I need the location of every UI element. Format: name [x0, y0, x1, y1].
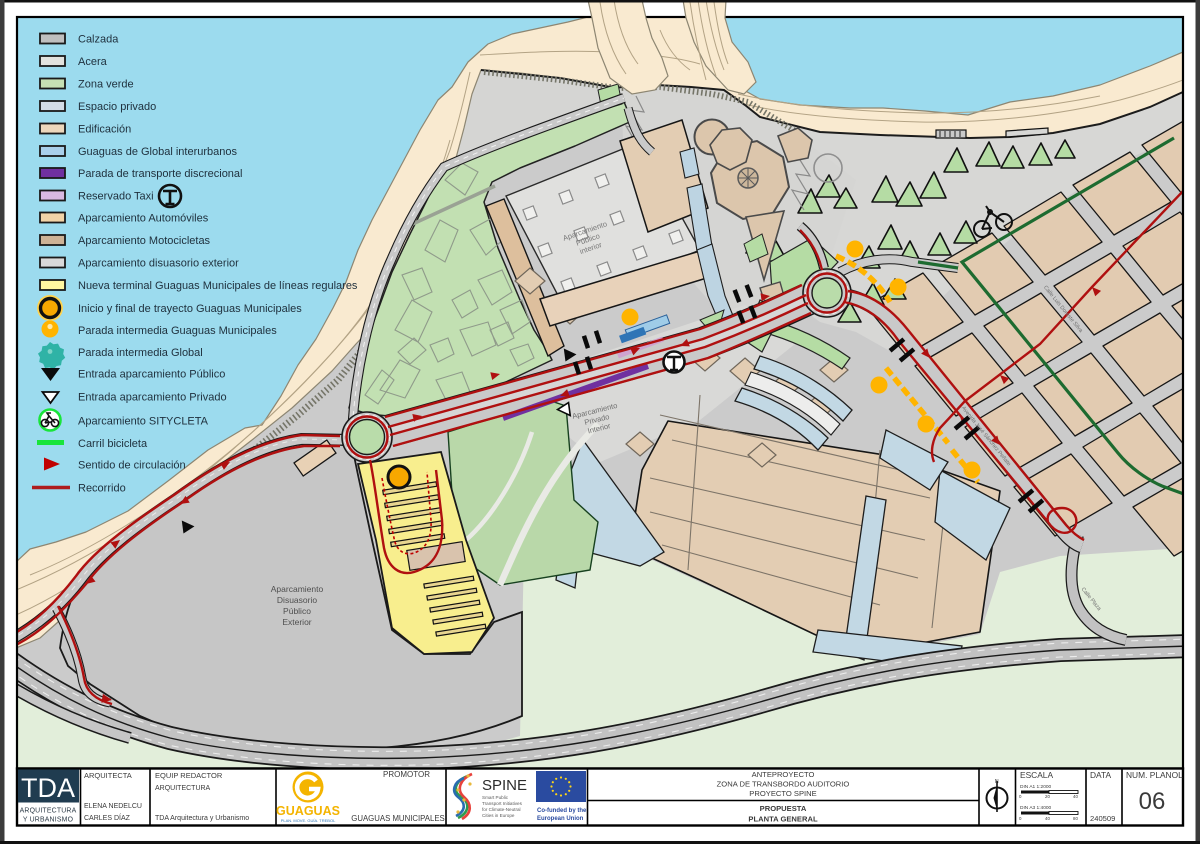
svg-text:Reservado Taxi: Reservado Taxi: [78, 191, 154, 203]
svg-text:ARQUITECTURA: ARQUITECTURA: [20, 808, 77, 815]
svg-text:Público: Público: [283, 606, 311, 616]
svg-text:Calzada: Calzada: [78, 34, 119, 46]
svg-text:Carril bicicleta: Carril bicicleta: [78, 438, 148, 450]
svg-text:European Union: European Union: [537, 816, 584, 822]
svg-text:PROYECTO SPINE: PROYECTO SPINE: [749, 789, 816, 798]
svg-text:Y URBANISMO: Y URBANISMO: [23, 817, 74, 824]
svg-text:Parada intermedia Global: Parada intermedia Global: [78, 347, 203, 359]
svg-text:ZONA DE TRANSBORDO AUDITORIO: ZONA DE TRANSBORDO AUDITORIO: [717, 780, 850, 789]
svg-text:Espacio privado: Espacio privado: [78, 101, 156, 113]
svg-text:PLANTA GENERAL: PLANTA GENERAL: [748, 815, 818, 824]
svg-text:GUAGUAS: GUAGUAS: [276, 804, 340, 818]
svg-text:TDA Arquitectura y Urbanismo: TDA Arquitectura y Urbanismo: [155, 815, 249, 822]
svg-text:Cities in Europe: Cities in Europe: [482, 813, 515, 818]
svg-text:EQUIP REDACTOR: EQUIP REDACTOR: [155, 771, 223, 780]
svg-text:Parada de transporte discrecio: Parada de transporte discrecional: [78, 168, 242, 180]
svg-text:Sentido de circulación: Sentido de circulación: [78, 460, 186, 472]
svg-text:ANTEPROYECTO: ANTEPROYECTO: [752, 770, 815, 779]
svg-text:GUAGUAS MUNICIPALES: GUAGUAS MUNICIPALES: [351, 814, 444, 823]
svg-text:PROMOTOR: PROMOTOR: [383, 770, 430, 779]
svg-text:Co-funded by the: Co-funded by the: [537, 808, 587, 814]
svg-text:Aparcamiento disuasorio exteri: Aparcamiento disuasorio exterior: [78, 258, 239, 270]
svg-text:Entrada aparcamiento Público: Entrada aparcamiento Público: [78, 369, 225, 381]
svg-text:Acera: Acera: [78, 56, 108, 68]
svg-text:Aparcamiento Automóviles: Aparcamiento Automóviles: [78, 213, 209, 225]
svg-text:Guaguas de Global interurbanos: Guaguas de Global interurbanos: [78, 146, 237, 158]
svg-text:CARLES DÍAZ: CARLES DÍAZ: [84, 813, 131, 822]
svg-text:for Climate-Neutral: for Climate-Neutral: [482, 807, 521, 812]
svg-text:Inicio y final de trayecto Gua: Inicio y final de trayecto Guaguas Munic…: [78, 303, 302, 315]
svg-text:ARQUITECTURA: ARQUITECTURA: [155, 785, 211, 792]
svg-text:SPINE: SPINE: [482, 777, 527, 794]
svg-text:Entrada aparcamiento Privado: Entrada aparcamiento Privado: [78, 392, 227, 404]
svg-text:ARQUITECTA: ARQUITECTA: [84, 771, 132, 780]
svg-text:DIN A1 1:2000: DIN A1 1:2000: [1020, 784, 1052, 790]
svg-text:240509: 240509: [1090, 814, 1115, 823]
svg-text:N: N: [995, 779, 999, 785]
svg-text:Zona verde: Zona verde: [78, 79, 134, 91]
svg-text:TDA: TDA: [21, 773, 75, 803]
svg-text:Aparcamiento SITYCLETA: Aparcamiento SITYCLETA: [78, 416, 209, 428]
svg-text:Nueva terminal Guaguas Municip: Nueva terminal Guaguas Municipales de lí…: [78, 280, 358, 292]
svg-text:Aparcamiento: Aparcamiento: [271, 584, 324, 594]
svg-text:40: 40: [1045, 816, 1050, 821]
svg-text:Recorrido: Recorrido: [78, 483, 126, 495]
svg-text:Parada intermedia Guaguas Muni: Parada intermedia Guaguas Municipales: [78, 325, 277, 337]
svg-text:06: 06: [1139, 788, 1166, 815]
svg-text:40: 40: [1073, 794, 1078, 799]
svg-text:ESCALA: ESCALA: [1020, 770, 1053, 780]
svg-text:PLAN. MOVE. GUÍA. TREBOL: PLAN. MOVE. GUÍA. TREBOL: [281, 818, 336, 823]
svg-text:Transport Initiatives: Transport Initiatives: [482, 801, 523, 806]
svg-text:Smart Public: Smart Public: [482, 795, 509, 800]
svg-text:80: 80: [1073, 816, 1078, 821]
svg-text:PROPUESTA: PROPUESTA: [760, 804, 807, 813]
svg-text:ELENA NEDELCU: ELENA NEDELCU: [84, 803, 142, 810]
svg-text:DIN A3 1:4000: DIN A3 1:4000: [1020, 805, 1052, 811]
svg-text:DATA: DATA: [1090, 770, 1112, 780]
svg-text:Disuasorio: Disuasorio: [277, 595, 317, 605]
svg-text:Edificación: Edificación: [78, 124, 131, 136]
svg-text:Exterior: Exterior: [282, 617, 311, 627]
svg-text:NUM. PLANOL: NUM. PLANOL: [1126, 770, 1183, 780]
svg-text:20: 20: [1045, 794, 1050, 799]
svg-text:Aparcamiento Motocicletas: Aparcamiento Motocicletas: [78, 235, 211, 247]
